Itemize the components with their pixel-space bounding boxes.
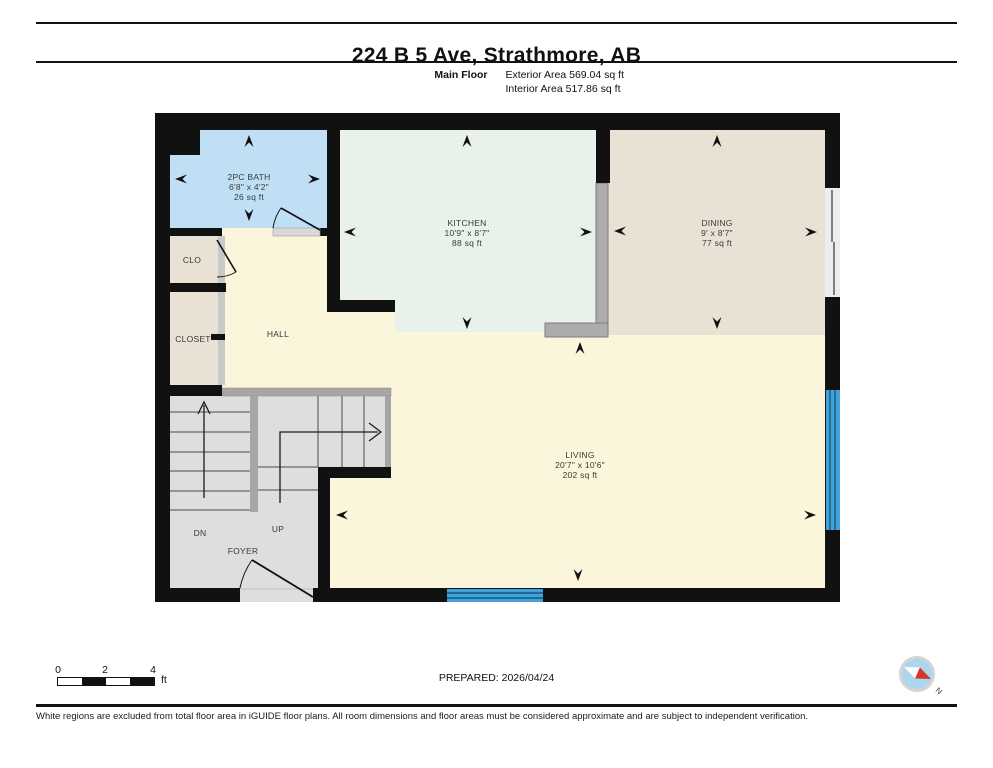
foyer-name: FOYER — [228, 546, 259, 556]
kitchen-name: KITCHEN — [447, 218, 486, 228]
stair-banister — [222, 388, 391, 396]
dining-name: DINING — [701, 218, 732, 228]
compass-icon: N — [894, 652, 944, 702]
floor-plan: 2PC BATH 6'8" x 4'2" 26 sq ft KITCHEN 10… — [155, 113, 840, 602]
living-dims: 20'7" x 10'6" — [555, 460, 605, 470]
floor-name-label: Main Floor — [0, 68, 497, 96]
closet-name: CLOSET — [175, 334, 211, 344]
footer-rule — [36, 704, 957, 707]
living-name: LIVING — [565, 450, 594, 460]
kitchen-area: 88 sq ft — [452, 238, 482, 248]
compass-north-label: N — [934, 686, 944, 697]
living-area: 202 sq ft — [563, 470, 598, 480]
bath-area: 26 sq ft — [234, 192, 264, 202]
living-window-right — [826, 390, 840, 530]
page-title: 224 B 5 Ave, Strathmore, AB — [0, 44, 993, 68]
stairs-up-label: UP — [272, 524, 284, 534]
bath-name: 2PC BATH — [228, 172, 271, 182]
kitchen-dims: 10'9" x 8'7" — [445, 228, 490, 238]
bath-corner-notch — [170, 130, 200, 155]
dining-area: 77 sq ft — [702, 238, 732, 248]
prepared-date: PREPARED: 2026/04/24 — [0, 672, 993, 684]
stair-banister-cap — [385, 396, 391, 467]
dining-dims: 9' x 8'7" — [701, 228, 733, 238]
interior-area-label: Interior Area 517.86 sq ft — [506, 82, 993, 96]
exterior-area-label: Exterior Area 569.04 sq ft — [506, 68, 993, 82]
title-rule — [36, 61, 957, 63]
stair-wall — [318, 467, 391, 478]
disclaimer-text: White regions are excluded from total fl… — [36, 711, 966, 722]
hall-name: HALL — [267, 329, 289, 339]
floor-summary: Main Floor Exterior Area 569.04 sq ft In… — [0, 68, 993, 96]
closet-door-stop — [211, 334, 225, 340]
floor-areas: Exterior Area 569.04 sq ft Interior Area… — [497, 68, 993, 96]
closet-door-jamb — [218, 236, 225, 385]
dining-window — [825, 188, 840, 297]
bath-dims: 6'8" x 4'2" — [229, 182, 269, 192]
living-window-bottom — [447, 589, 543, 602]
top-rule — [36, 22, 957, 24]
stair-divider — [250, 396, 258, 512]
clo-name: CLO — [183, 255, 201, 265]
stairs-down-label: DN — [194, 528, 207, 538]
